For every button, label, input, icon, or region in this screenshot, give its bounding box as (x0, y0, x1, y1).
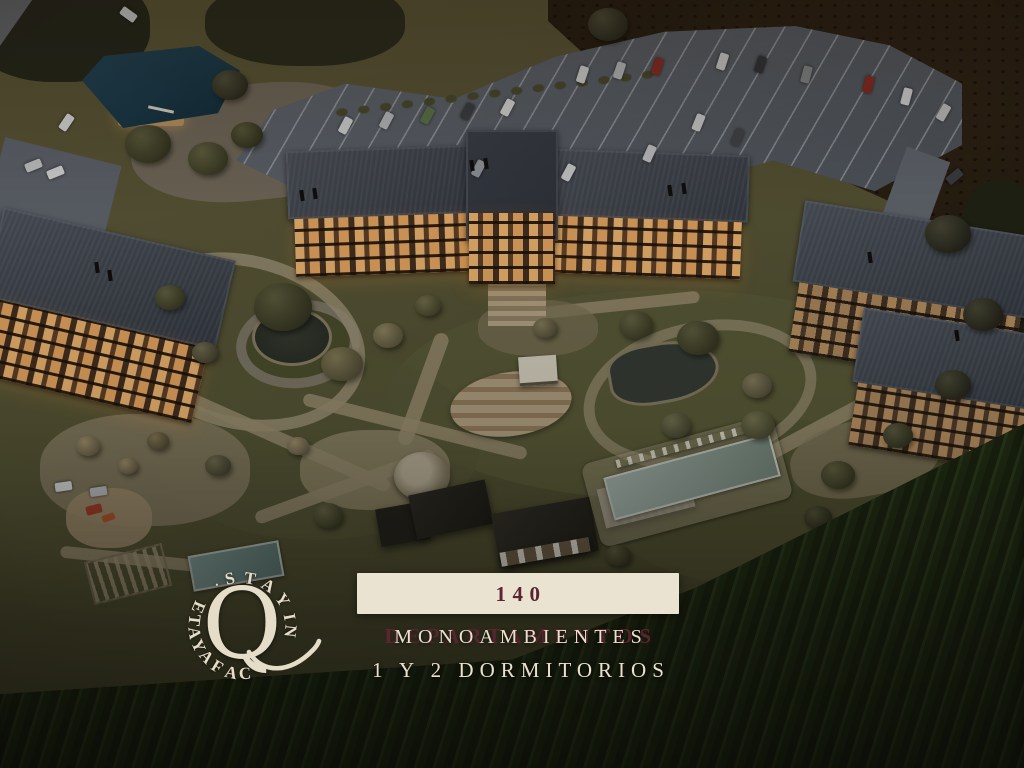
aerial-dusk-render: ·STAYIN CAFAYATE Q 140 DEPARTAMENTOS MON… (0, 0, 1024, 768)
subtitle-line-1: MONOAMBIENTES (338, 626, 698, 649)
logo-q-swash-icon (150, 540, 340, 725)
badge-140-departamentos: 140 DEPARTAMENTOS (357, 573, 679, 614)
subtitle-block: MONOAMBIENTES 1 Y 2 DORMITORIOS (338, 626, 698, 683)
subtitle-line-2: 1 Y 2 DORMITORIOS (338, 658, 698, 683)
stay-in-q-cafayate-logo: ·STAYIN CAFAYATE Q (150, 540, 340, 725)
marketing-overlay: ·STAYIN CAFAYATE Q 140 DEPARTAMENTOS MON… (0, 0, 1024, 768)
